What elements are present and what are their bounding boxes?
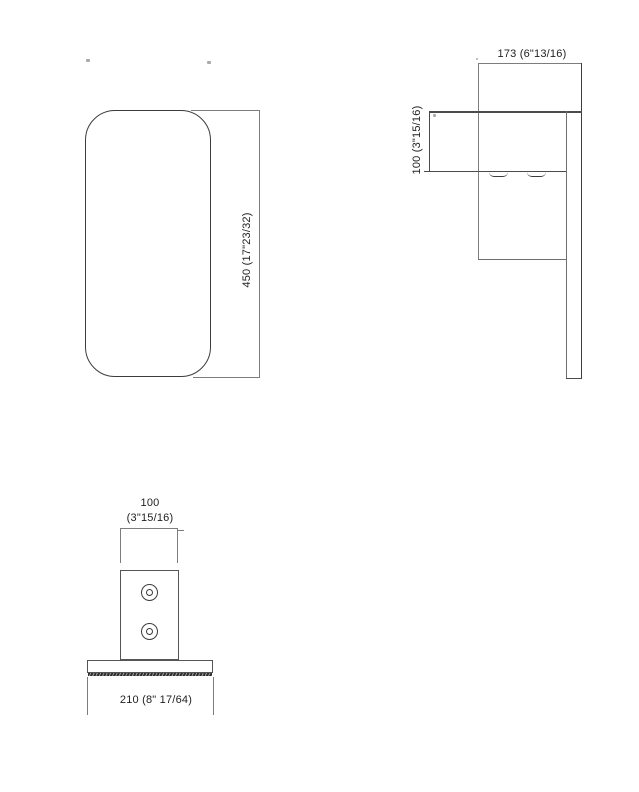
dimension-label-width-inches: (3"15/16) <box>105 512 195 525</box>
hinge-knuckle-arc <box>489 172 508 177</box>
screw-hole-inner <box>146 628 153 635</box>
bottom-view: 100 (3"15/16) 210 (8" 17/64) <box>0 0 639 792</box>
extension-line-left <box>478 63 479 260</box>
dimension-line-height <box>259 110 260 378</box>
dimension-label-base: 210 (8" 17/64) <box>93 694 219 707</box>
extension-line-top <box>191 110 260 111</box>
dimension-label-width-mm: 100 <box>105 497 195 510</box>
screw-hole-inner <box>146 589 153 596</box>
screw-hole-outer <box>141 584 158 601</box>
extension-line-width-right <box>177 528 178 563</box>
extension-line-base-left <box>87 677 88 715</box>
seat-front-outline <box>85 110 211 377</box>
print-artifact-dot <box>207 61 211 64</box>
wall-plate-right-edge <box>581 63 582 379</box>
seat-bottom-edge <box>424 171 567 172</box>
dimension-line-width <box>120 528 179 529</box>
mounting-surface-hatch <box>88 673 212 677</box>
extension-line-bottom <box>193 377 260 378</box>
side-view: 173 (6"13/16) 100 (3"15/16) <box>0 0 639 792</box>
dimension-tick <box>178 530 184 531</box>
support-box-bottom-edge <box>478 259 567 260</box>
print-artifact-dot <box>433 114 436 117</box>
wall-plate-left-edge <box>566 111 567 379</box>
drawing-canvas: 450 (17"23/32) 173 (6"13/16) 100 (3"15/1… <box>0 0 639 792</box>
print-artifact-dot <box>476 58 478 60</box>
seat-front-edge <box>429 111 430 172</box>
hinge-knuckle-arc <box>527 172 546 177</box>
extension-line-width-left <box>120 528 121 563</box>
dimension-label-depth: 173 (6"13/16) <box>478 48 586 61</box>
print-artifact-dot <box>86 59 90 62</box>
base-plate-outline <box>87 660 213 673</box>
mounting-post-outline <box>120 570 180 660</box>
dimension-label-height: 450 (17"23/32) <box>241 185 255 315</box>
seat-top-edge <box>429 111 582 113</box>
front-view: 450 (17"23/32) <box>0 0 639 792</box>
screw-hole-outer <box>141 623 158 640</box>
dimension-label-thickness: 100 (3"15/16) <box>411 75 425 205</box>
extension-line-base-right <box>213 677 214 715</box>
wall-plate-bottom-edge <box>566 378 582 379</box>
dimension-line-depth <box>478 63 582 64</box>
